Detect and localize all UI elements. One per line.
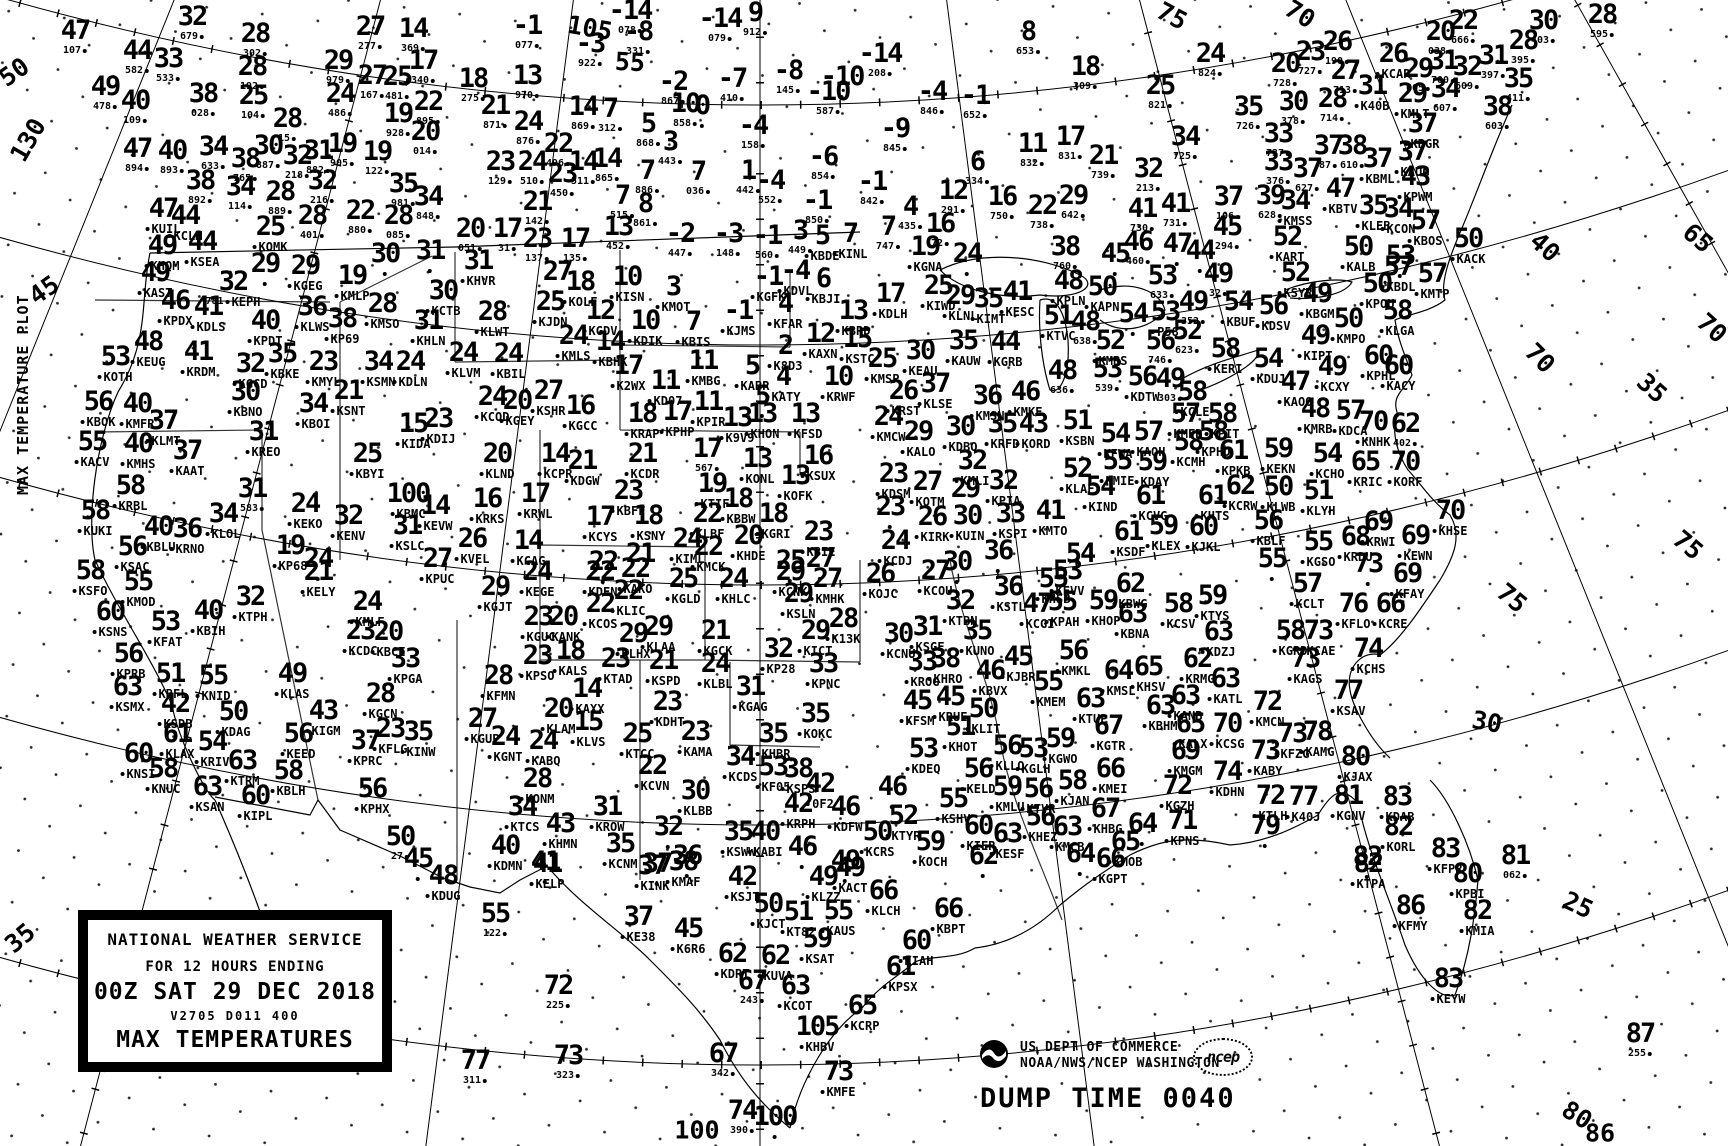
legend-subtitle: FOR 12 HOURS ENDING [145, 959, 324, 975]
station-temp: 30 [429, 277, 458, 304]
station-dot [981, 874, 985, 878]
station-temp: 37 [1363, 145, 1392, 172]
station-dot [1341, 265, 1345, 269]
station-temp: 46 [831, 793, 860, 820]
station-meta: KGNV [1331, 810, 1366, 822]
station-id: KABY [1254, 765, 1283, 777]
station-dot [145, 167, 149, 171]
station-id: KRPH [787, 818, 816, 830]
station-dot [191, 325, 195, 329]
station-dot [225, 779, 229, 783]
station-temp: 55 [1103, 447, 1132, 474]
station-meta: KFMY [1393, 920, 1428, 932]
station-temp: 24 [953, 240, 982, 267]
station-temp: 24 [326, 80, 355, 107]
station-temp: 31 [1358, 72, 1387, 99]
station-meta: KCXY [1315, 381, 1350, 393]
station-temp: 58 [149, 755, 178, 782]
station-temp: 21 [523, 188, 552, 215]
station-dot [901, 450, 905, 454]
station-dot [200, 35, 204, 39]
station-temp: 18 [566, 268, 595, 295]
station-id: KGNV [1337, 810, 1366, 822]
station-temp: 43 [1019, 410, 1048, 437]
station-meta: KJKL [1186, 541, 1221, 553]
station-temp: 58 [81, 497, 110, 524]
station-meta: 122 [483, 928, 507, 940]
station-dot [1505, 125, 1509, 129]
station-temp: 44 [188, 228, 217, 255]
station-id: KMTP [1421, 288, 1450, 300]
station-temp: 41 [1161, 190, 1190, 217]
station-sub-value: 871 [483, 121, 501, 131]
station-dot [475, 330, 479, 334]
station-kphp: 17KPHP [660, 398, 695, 438]
station-kalb: 50KALB [1341, 233, 1376, 273]
station: -14208 [859, 40, 902, 80]
station-dot [1111, 550, 1115, 554]
station-temp: 20 [456, 215, 485, 242]
station-id: KLOL [212, 528, 241, 540]
station: 28401 [298, 202, 327, 242]
station-id: KMIA [1466, 925, 1495, 937]
station: 21739 [1089, 142, 1118, 182]
station-temp: 61 [886, 953, 915, 980]
station-temp: 105 [796, 1013, 839, 1040]
station-dot [778, 199, 782, 203]
station-dot [93, 630, 97, 634]
station-temp: 24 [874, 403, 903, 430]
graticule-label-30: 30 [1470, 705, 1505, 739]
station-dot [461, 279, 465, 283]
station-dot [393, 380, 397, 384]
station-meta: KCOS [583, 618, 618, 630]
station-meta: 410 [720, 93, 744, 105]
station-temp: 36 [994, 573, 1023, 600]
station-dot [1301, 120, 1305, 124]
station-sub-value: 582 [125, 66, 143, 76]
station-dot [368, 229, 372, 233]
station-dot [148, 640, 152, 644]
station-kenv: 32KENV [331, 502, 366, 542]
station-temp: 26 [889, 377, 918, 404]
station-meta: KLCH [866, 905, 901, 917]
noaa-eagle-icon [979, 1039, 1009, 1069]
station-meta: KINL [833, 248, 868, 260]
station-khde: 20KHDE [731, 522, 766, 562]
station-dot [986, 499, 990, 503]
station-temp: 15 [574, 708, 603, 735]
station-kinw: 35KINW [401, 718, 436, 758]
station-temp: 70 [1213, 710, 1242, 737]
station-sub-value: 397 [1481, 71, 1499, 81]
station-khbv: 105KHBV [796, 1013, 839, 1053]
station-temp: 26 [1323, 28, 1352, 55]
station-id: KFMY [1399, 920, 1428, 932]
station-temp: 61 [1136, 482, 1165, 509]
station-temp: 18 [724, 485, 753, 512]
station-meta: KGPT [1093, 873, 1128, 885]
station-sub-value: 447 [668, 249, 686, 259]
station-katy: 4KATY [766, 363, 801, 403]
station-meta: KBDL [1381, 281, 1416, 293]
station-khmn: 43KHMN [543, 810, 578, 850]
station-meta: KUIN [950, 530, 985, 542]
station-meta: 397 [1481, 70, 1505, 82]
station-dot [660, 430, 664, 434]
station-sub-value: 077 [515, 41, 533, 51]
station-temp: 13 [839, 297, 868, 324]
station-sub-value: 331 [626, 47, 644, 57]
station-temp: 3 [666, 273, 680, 300]
station-dot [508, 180, 512, 184]
station-sub-value: 079 [708, 34, 726, 44]
station-id: KPSX [889, 981, 918, 993]
station-temp: 17 [663, 398, 692, 425]
station-meta: 294 [1215, 241, 1239, 253]
station-kdsv: 56KDSV [1256, 292, 1291, 332]
station-kpdx: 46KPDX [158, 287, 193, 327]
station-khsv: 65KHSV [1131, 653, 1166, 693]
station-temp: 21 [568, 447, 597, 474]
station-temp: 34 [364, 348, 393, 375]
station-temp: 71 [1168, 807, 1197, 834]
station-temp: 18 [628, 400, 657, 427]
station-temp: 63 [1118, 600, 1147, 627]
station-meta: 167 [360, 90, 384, 102]
station-temp: 54 [1224, 288, 1253, 315]
station-dot [833, 886, 837, 890]
station-temp: 23 [879, 460, 908, 487]
station-kcos: 22KCOS [583, 590, 618, 630]
station-temp: 56 [964, 755, 993, 782]
station-dot [773, 590, 777, 594]
station-meta: KSAT [800, 953, 835, 965]
station-dot [1161, 622, 1165, 626]
station-temp: 72 [1253, 688, 1282, 715]
station-temp: 16 [988, 183, 1017, 210]
station-dot [1156, 187, 1160, 191]
station-meta: KSNT [331, 405, 366, 417]
station-khon: 13KHON [745, 400, 780, 440]
station-temp: 32 [334, 502, 363, 529]
station-dot [666, 597, 670, 601]
station-sub-value: 628 [1258, 211, 1276, 221]
station-meta: KLND [480, 468, 515, 480]
station-sub-value: 587 [816, 107, 834, 117]
station-temp: 66 [934, 895, 963, 922]
station-temp: 22 [414, 88, 443, 115]
station-dot [873, 312, 877, 316]
station-temp: 62 [1391, 410, 1420, 437]
station-temp: 53 [101, 343, 130, 370]
station-temp: 83 [1434, 965, 1463, 992]
station-dot [1250, 720, 1254, 724]
station-temp: 69 [1171, 737, 1200, 764]
station-sub-value: 887 [256, 161, 274, 171]
station-dot [1381, 384, 1385, 388]
station-id: KERI [1214, 363, 1243, 375]
station-meta: KINW [401, 746, 436, 758]
station-khot: 51KHOT [943, 713, 978, 753]
station-dot [533, 320, 537, 324]
station-temp: 35 [1234, 93, 1263, 120]
station-sub-value: 145 [776, 86, 794, 96]
station-temp: 29 [291, 252, 320, 279]
station-temp: 46 [1011, 378, 1040, 405]
station-dot [363, 712, 367, 716]
station-temp: 53 [1093, 355, 1122, 382]
station-dot [1125, 395, 1129, 399]
station-temp: 49 [141, 259, 170, 286]
station-id: KGEY [506, 415, 535, 427]
station-meta: KPRC [348, 755, 383, 767]
station-meta: KDLN [393, 376, 428, 388]
station-dot [378, 45, 382, 49]
station-kags: 73KAGS [1288, 645, 1323, 685]
station-temp: 28 [368, 290, 397, 317]
station-temp: 45 [1213, 213, 1242, 240]
station-temp: 19 [276, 532, 305, 559]
station-krno: 36KRNO [170, 515, 205, 555]
station-id: KDSV [1262, 320, 1291, 332]
station-dot [1160, 804, 1164, 808]
legend-box: NATIONAL WEATHER SERVICE FOR 12 HOURS EN… [78, 910, 392, 1072]
station-kprc: 37KPRC [348, 727, 383, 767]
station-meta: KLOL [206, 528, 241, 540]
station-meta: K6R6 [671, 943, 706, 955]
station-dot [745, 432, 749, 436]
station-dot [1115, 632, 1119, 636]
station-meta: KGSO [1301, 556, 1336, 568]
station-temp: 73 [1304, 617, 1333, 644]
station-dot [768, 322, 772, 326]
station-meta: KLWT [475, 326, 510, 338]
station-dot [1298, 354, 1302, 358]
station-dot [1333, 429, 1337, 433]
station-temp: 45 [674, 915, 703, 942]
station-meta: KPSX [883, 981, 918, 993]
station-dot [500, 419, 504, 423]
station-kals: 18KALS [553, 637, 588, 677]
station-temp: 31 [736, 673, 765, 700]
station-dot [1043, 757, 1047, 761]
station-meta: KLGA [1380, 325, 1415, 337]
station-dot [845, 1024, 849, 1028]
station-temp: 31 [393, 512, 422, 539]
station-katl: 63KATL [1208, 665, 1243, 705]
station: 77311 [461, 1047, 490, 1087]
station-temp: 49 [836, 854, 865, 881]
station-dot [1216, 469, 1220, 473]
station-kokc: 35KOKC [798, 700, 833, 740]
station-dot [826, 637, 830, 641]
station-dot [530, 882, 534, 886]
station-dot [1201, 650, 1205, 654]
station-temp: 62 [969, 842, 998, 869]
station-kbpt: 66KBPT [931, 895, 966, 935]
station-dot [1381, 227, 1385, 231]
station: 8653 [1016, 18, 1040, 58]
station-temp: 49 [1204, 260, 1233, 287]
station-id: KSMX [116, 701, 145, 713]
station-kmaf: 38KMAF [666, 848, 701, 888]
station-id: KMLS [562, 350, 591, 362]
station-meta [1263, 840, 1267, 852]
station-temp: 30 [946, 413, 975, 440]
station-dot [1351, 667, 1355, 671]
station-meta: 452 [606, 241, 630, 253]
station-temp: 40 [124, 430, 153, 457]
station-temp: 60 [96, 598, 125, 625]
station-dot [756, 785, 760, 789]
station-temp: 51 [946, 713, 975, 740]
station-temp: 22 [586, 590, 615, 617]
station-temp: 19 [911, 233, 940, 260]
station-dot [1381, 285, 1385, 289]
station-temp: 31 [414, 307, 443, 334]
station-temp: 28 [238, 53, 267, 80]
station-id: KDGW [571, 475, 600, 487]
station-temp: 68 [1341, 523, 1370, 550]
station-temp: 7 [615, 182, 629, 209]
station-temp: 24 [518, 148, 547, 175]
station-dot [1131, 685, 1135, 689]
station: 20728 [1271, 50, 1300, 90]
station-meta: KRIC [1348, 476, 1383, 488]
station-temp: 33 [809, 650, 838, 677]
station: 1731 [493, 215, 522, 255]
station-dot [1050, 224, 1054, 228]
station-meta: KALO [901, 446, 936, 458]
station-temp: 70 [1391, 448, 1420, 475]
station-dot [905, 680, 909, 684]
station-meta: KLAS [275, 688, 310, 700]
station-dot [1380, 329, 1384, 333]
station-kmhs: 40KMHS [121, 430, 156, 470]
station-meta [981, 870, 985, 882]
station-temp: 56 [284, 720, 313, 747]
station-temp: -14 [609, 0, 652, 24]
station-meta: KIPL [238, 810, 273, 822]
station-temp: 49 [1318, 353, 1347, 380]
station-id: KHON [751, 428, 780, 440]
station-ksmn: 34KSMN [361, 348, 396, 388]
station-dot [915, 535, 919, 539]
station-id: KUKI [84, 525, 113, 537]
station-id: KGRI [762, 528, 791, 540]
station: 31 [416, 237, 445, 277]
station-sub-value: 739 [1091, 171, 1109, 181]
station-temp: 87 [1626, 1020, 1655, 1047]
station-temp: 18 [1071, 53, 1100, 80]
station: 17831 [1056, 123, 1085, 163]
station-sub-value: 610 [1340, 161, 1358, 171]
station-kbis: 7KBIS [676, 308, 711, 348]
station-meta: 401 [300, 230, 324, 242]
station-dot [698, 682, 702, 686]
station-meta: 582 [125, 65, 149, 77]
station-temp: 0 [695, 92, 709, 119]
station-kcdr: 21KCDR [625, 440, 660, 480]
station-temp: 67 [1094, 712, 1123, 739]
station-dot [1270, 577, 1274, 581]
station-dot [180, 169, 184, 173]
station-meta: KFAT [148, 636, 183, 648]
station-meta: KPHX [355, 803, 390, 815]
station-temp: 48 [1048, 357, 1077, 384]
station-meta: KACK [1451, 253, 1486, 265]
station-temp: 63 [1171, 682, 1200, 709]
station-kaby: 73KABY [1248, 737, 1283, 777]
station-meta: KRWL [518, 508, 553, 520]
station-temp: 10 [824, 363, 853, 390]
station: -6854 [809, 143, 838, 183]
station-temp: 44 [123, 37, 152, 64]
station-meta: KHBV [800, 1041, 835, 1053]
station-meta: KMHS [121, 458, 156, 470]
station-temp: 59 [1046, 725, 1075, 752]
station-temp: 30 [254, 132, 283, 159]
station-temp: 30 [953, 502, 982, 529]
station-dot [1168, 714, 1172, 718]
station-dot [571, 740, 575, 744]
station-kbtv: 47KBTV [1323, 175, 1358, 215]
station-sub-value: 255 [1628, 1049, 1646, 1059]
station-dot [1041, 334, 1045, 338]
station-dot [1286, 180, 1290, 184]
station-kcxy: 49KCXY [1315, 353, 1350, 393]
station-temp: 51 [784, 898, 813, 925]
station: 19928 [384, 100, 413, 140]
station-id: KEGE [526, 586, 555, 598]
station-dot [503, 124, 507, 128]
station-kgpt: 66KGPT [1093, 845, 1128, 885]
station-sub-value: 107 [63, 46, 81, 56]
station-dot [1451, 257, 1455, 261]
station: -1560 [753, 222, 782, 262]
station-sub-value: 122 [483, 929, 501, 939]
station-temp: 20 [544, 695, 573, 722]
station-temp: 41 [1003, 278, 1032, 305]
station-temp: 19 [363, 138, 392, 165]
station-kdgw: 21KDGW [565, 447, 600, 487]
station-id: KLBB [684, 805, 713, 817]
station-kdzj: 63KDZJ [1201, 618, 1236, 658]
station-kmto: 41KMTO [1033, 497, 1068, 537]
station-id: KSAT [806, 953, 835, 965]
station-temp: 55 [124, 568, 153, 595]
station-kbno: 30KBNO [228, 378, 263, 418]
station-kchs: 74KCHS [1351, 635, 1386, 675]
station-meta: KDHN [1210, 786, 1245, 798]
station-dot [1001, 675, 1005, 679]
station-temp: 24 [491, 723, 520, 750]
station-dot [806, 297, 810, 301]
station-dot [1078, 155, 1082, 159]
station-kjms: -1KJMS [721, 297, 756, 337]
station-dot [146, 787, 150, 791]
station-id: KATL [1214, 693, 1243, 705]
station-dot [945, 242, 949, 246]
station-temp: 77 [1289, 783, 1318, 810]
station-dot [1036, 597, 1040, 601]
station-id: KBML [1366, 173, 1395, 185]
station-kblf: 56KBLF [1251, 507, 1286, 547]
station-dot [1361, 374, 1365, 378]
station-temp: 34 [1281, 187, 1310, 214]
station-temp: 25 [353, 440, 382, 467]
